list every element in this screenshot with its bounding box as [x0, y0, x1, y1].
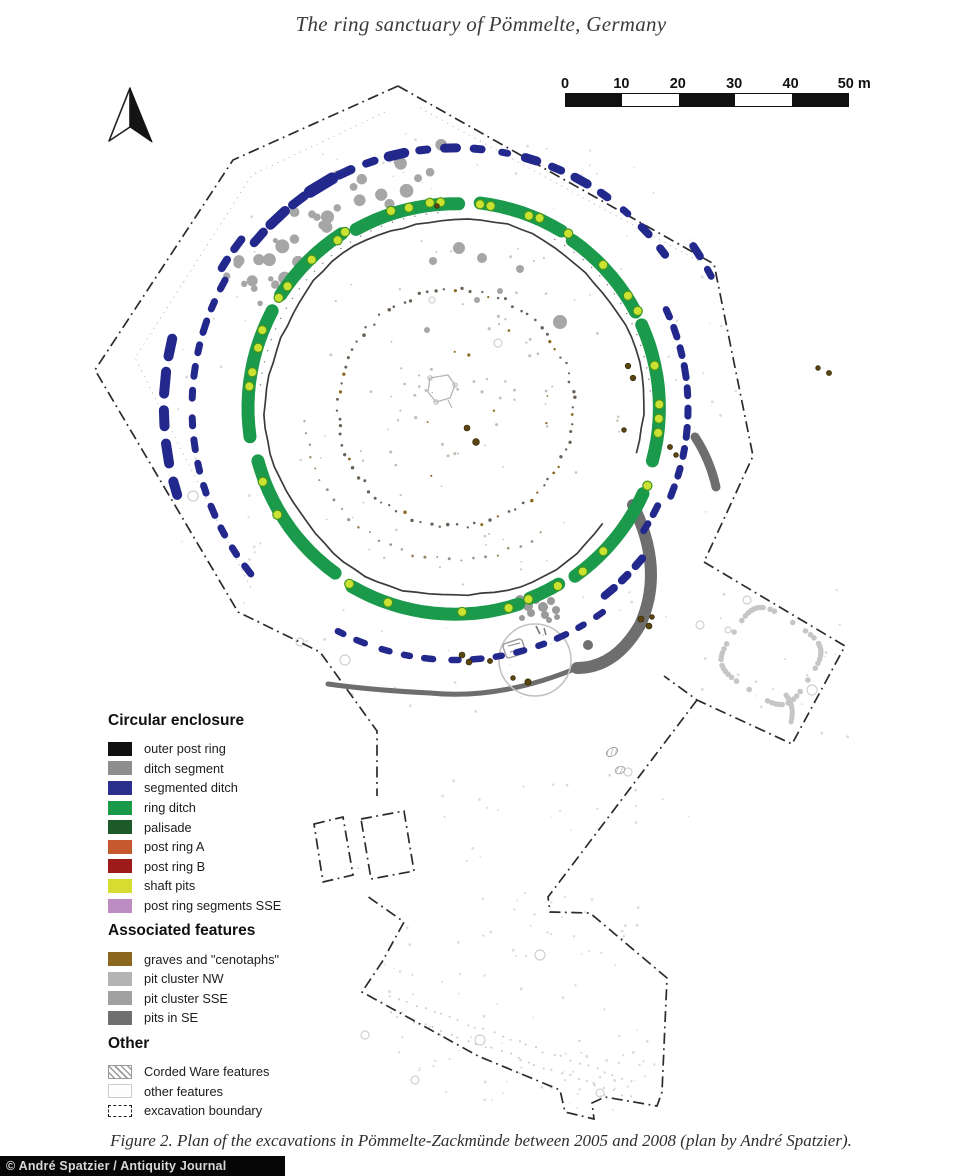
legend-item: pit cluster SSE: [108, 989, 338, 1009]
legend-label: post ring segments SSE: [144, 898, 281, 913]
figure-caption: Figure 2. Plan of the excavations in Pöm…: [0, 1131, 962, 1151]
legend-item: ditch segment: [108, 759, 338, 779]
legend-swatch-corded-ware-features: [108, 1065, 132, 1079]
legend-swatch-graves-and-cenotaphs-: [108, 952, 132, 966]
legend-item: post ring segments SSE: [108, 896, 338, 916]
legend-swatch-segmented-ditch: [108, 781, 132, 795]
legend-swatch-post-ring-b: [108, 859, 132, 873]
scale-segment: [566, 94, 622, 106]
legend-label: post ring A: [144, 839, 204, 854]
legend-item: outer post ring: [108, 739, 338, 759]
legend-swatch-pits-in-se: [108, 1011, 132, 1025]
copyright-credit-bar: © André Spatzier / Antiquity Journal: [0, 1156, 285, 1176]
legend-section-title: Associated features: [108, 922, 338, 940]
square-post-feature: [718, 605, 823, 722]
legend-swatch-pit-cluster-nw: [108, 972, 132, 986]
scale-tick-label: 40: [783, 76, 799, 92]
legend-swatch-palisade: [108, 820, 132, 834]
legend-item: excavation boundary: [108, 1101, 338, 1121]
legend-swatch-other-features: [108, 1084, 132, 1098]
scale-tick-label: 10: [613, 76, 629, 92]
pits-in-se: [328, 437, 716, 694]
legend-item: ring ditch: [108, 798, 338, 818]
legend-section-title: Other: [108, 1035, 338, 1053]
legend-item: other features: [108, 1081, 338, 1101]
legend-swatch-post-ring-a: [108, 840, 132, 854]
legend-swatch-ditch-segment: [108, 761, 132, 775]
scale-tick-label: 20: [670, 76, 686, 92]
legend: Circular enclosureouter post ringditch s…: [108, 705, 338, 1121]
outer-post-ring: [260, 212, 651, 595]
legend-item: post ring B: [108, 857, 338, 877]
legend-swatch-post-ring-segments-sse: [108, 899, 132, 913]
legend-swatch-pit-cluster-sse: [108, 991, 132, 1005]
legend-item: shaft pits: [108, 876, 338, 896]
scale-segment: [622, 94, 678, 106]
legend-item: pit cluster NW: [108, 969, 338, 989]
legend-swatch-ring-ditch: [108, 801, 132, 815]
legend-label: palisade: [144, 820, 192, 835]
pit-cluster-nw: [223, 139, 567, 333]
central-feature: [428, 375, 457, 408]
legend-item: graves and "cenotaphs": [108, 949, 338, 969]
legend-item: post ring A: [108, 837, 338, 857]
legend-label: pit cluster NW: [144, 971, 224, 986]
legend-section-title: Circular enclosure: [108, 712, 338, 730]
legend-item: pits in SE: [108, 1008, 338, 1028]
legend-label: pits in SE: [144, 1010, 198, 1025]
legend-swatch-outer-post-ring: [108, 742, 132, 756]
scale-bar: 01020304050 m: [565, 76, 865, 110]
legend-item: segmented ditch: [108, 778, 338, 798]
legend-label: post ring B: [144, 859, 205, 874]
scale-bar-labels: 01020304050 m: [565, 76, 865, 93]
scale-segment: [679, 94, 735, 106]
corded-ware-features: [605, 746, 626, 775]
ring-ditch: [248, 203, 659, 614]
scale-segment: [792, 94, 848, 106]
legend-label: other features: [144, 1084, 223, 1099]
legend-label: shaft pits: [144, 878, 195, 893]
scale-segment: [735, 94, 791, 106]
scale-bar-segments: [565, 93, 849, 107]
north-arrow: [109, 88, 152, 142]
legend-label: ditch segment: [144, 761, 224, 776]
legend-swatch-excavation-boundary: [108, 1105, 132, 1117]
legend-swatch-shaft-pits: [108, 879, 132, 893]
legend-label: outer post ring: [144, 741, 226, 756]
legend-label: ring ditch: [144, 800, 196, 815]
scale-end-label: 50 m: [838, 76, 871, 92]
legend-label: graves and "cenotaphs": [144, 952, 279, 967]
legend-item: palisade: [108, 817, 338, 837]
inner-post-rings: [300, 240, 620, 585]
legend-item: Corded Ware features: [108, 1062, 338, 1082]
legend-label: segmented ditch: [144, 780, 238, 795]
scale-tick-label: 0: [561, 76, 569, 92]
legend-label: Corded Ware features: [144, 1064, 269, 1079]
legend-label: excavation boundary: [144, 1103, 262, 1118]
legend-label: pit cluster SSE: [144, 991, 228, 1006]
scale-tick-label: 30: [726, 76, 742, 92]
